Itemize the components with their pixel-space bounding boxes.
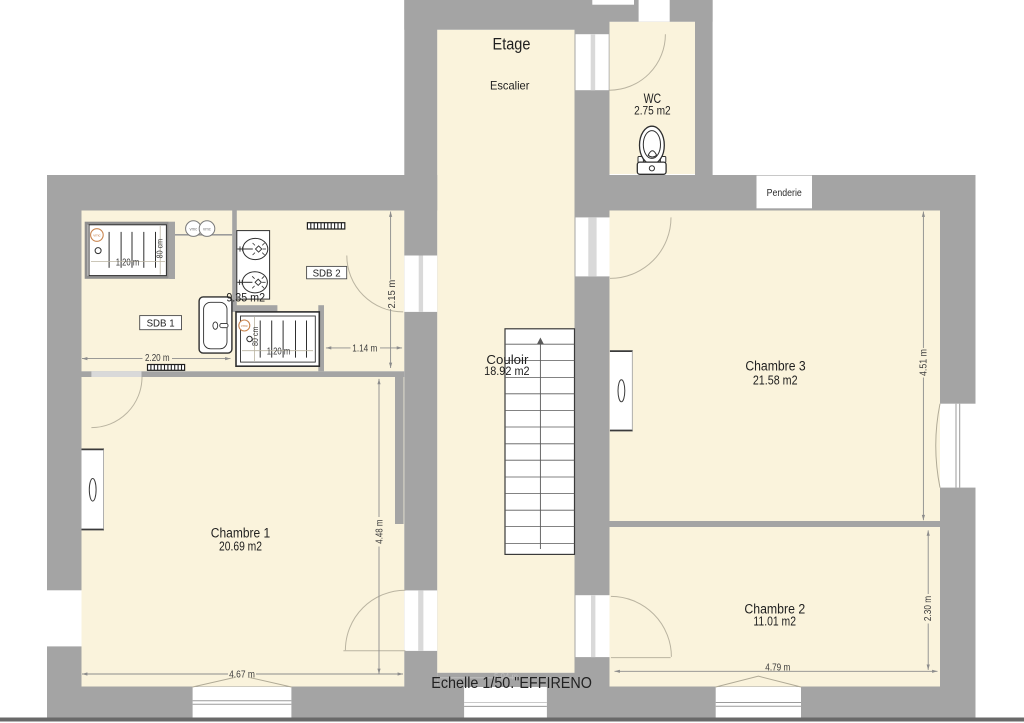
svg-text:2.20 m: 2.20 m: [145, 353, 170, 364]
svg-text:11.01 m2: 11.01 m2: [753, 615, 796, 629]
svg-text:2.15 m: 2.15 m: [387, 280, 398, 309]
svg-text:vmc: vmc: [189, 226, 198, 231]
svg-text:20.69 m2: 20.69 m2: [219, 540, 262, 554]
svg-text:21.58 m2: 21.58 m2: [753, 374, 798, 388]
svg-text:Penderie: Penderie: [767, 187, 802, 199]
svg-text:4.67 m: 4.67 m: [229, 670, 255, 681]
svg-text:4.51 m: 4.51 m: [918, 349, 929, 376]
svg-text:Chambre 3: Chambre 3: [745, 359, 805, 374]
svg-text:4.48 m: 4.48 m: [375, 520, 386, 544]
svg-text:2.30 m: 2.30 m: [923, 596, 934, 621]
svg-text:SDB 2: SDB 2: [313, 267, 341, 279]
svg-text:vmc: vmc: [93, 232, 100, 237]
svg-text:1.20 m: 1.20 m: [116, 257, 140, 268]
svg-text:vmc: vmc: [203, 226, 212, 231]
svg-text:Echelle 1/50."EFFIRENO: Echelle 1/50."EFFIRENO: [431, 675, 592, 692]
svg-text:vmc: vmc: [241, 324, 248, 328]
svg-text:4.79 m: 4.79 m: [765, 662, 790, 673]
svg-text:18.92 m2: 18.92 m2: [484, 364, 530, 378]
svg-text:80 cm: 80 cm: [154, 239, 164, 259]
svg-text:2.75 m2: 2.75 m2: [634, 104, 671, 118]
svg-text:SDB 1: SDB 1: [147, 317, 175, 329]
svg-text:80 cm: 80 cm: [250, 327, 260, 347]
svg-text:Chambre 1: Chambre 1: [211, 526, 270, 541]
svg-text:Escalier: Escalier: [490, 78, 529, 92]
svg-text:1.14 m: 1.14 m: [352, 343, 377, 354]
svg-text:Etage: Etage: [493, 34, 531, 53]
svg-text:9.35 m2: 9.35 m2: [226, 291, 265, 305]
svg-text:1.20 m: 1.20 m: [267, 346, 291, 357]
